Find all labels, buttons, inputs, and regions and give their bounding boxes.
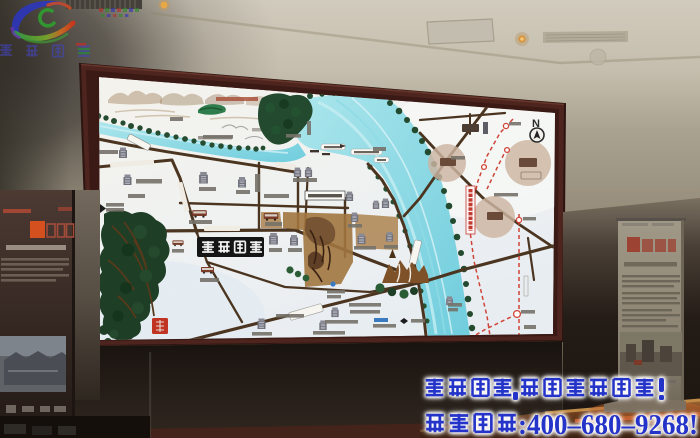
svg-text::400–680–9268!: :400–680–9268! bbox=[518, 410, 698, 438]
